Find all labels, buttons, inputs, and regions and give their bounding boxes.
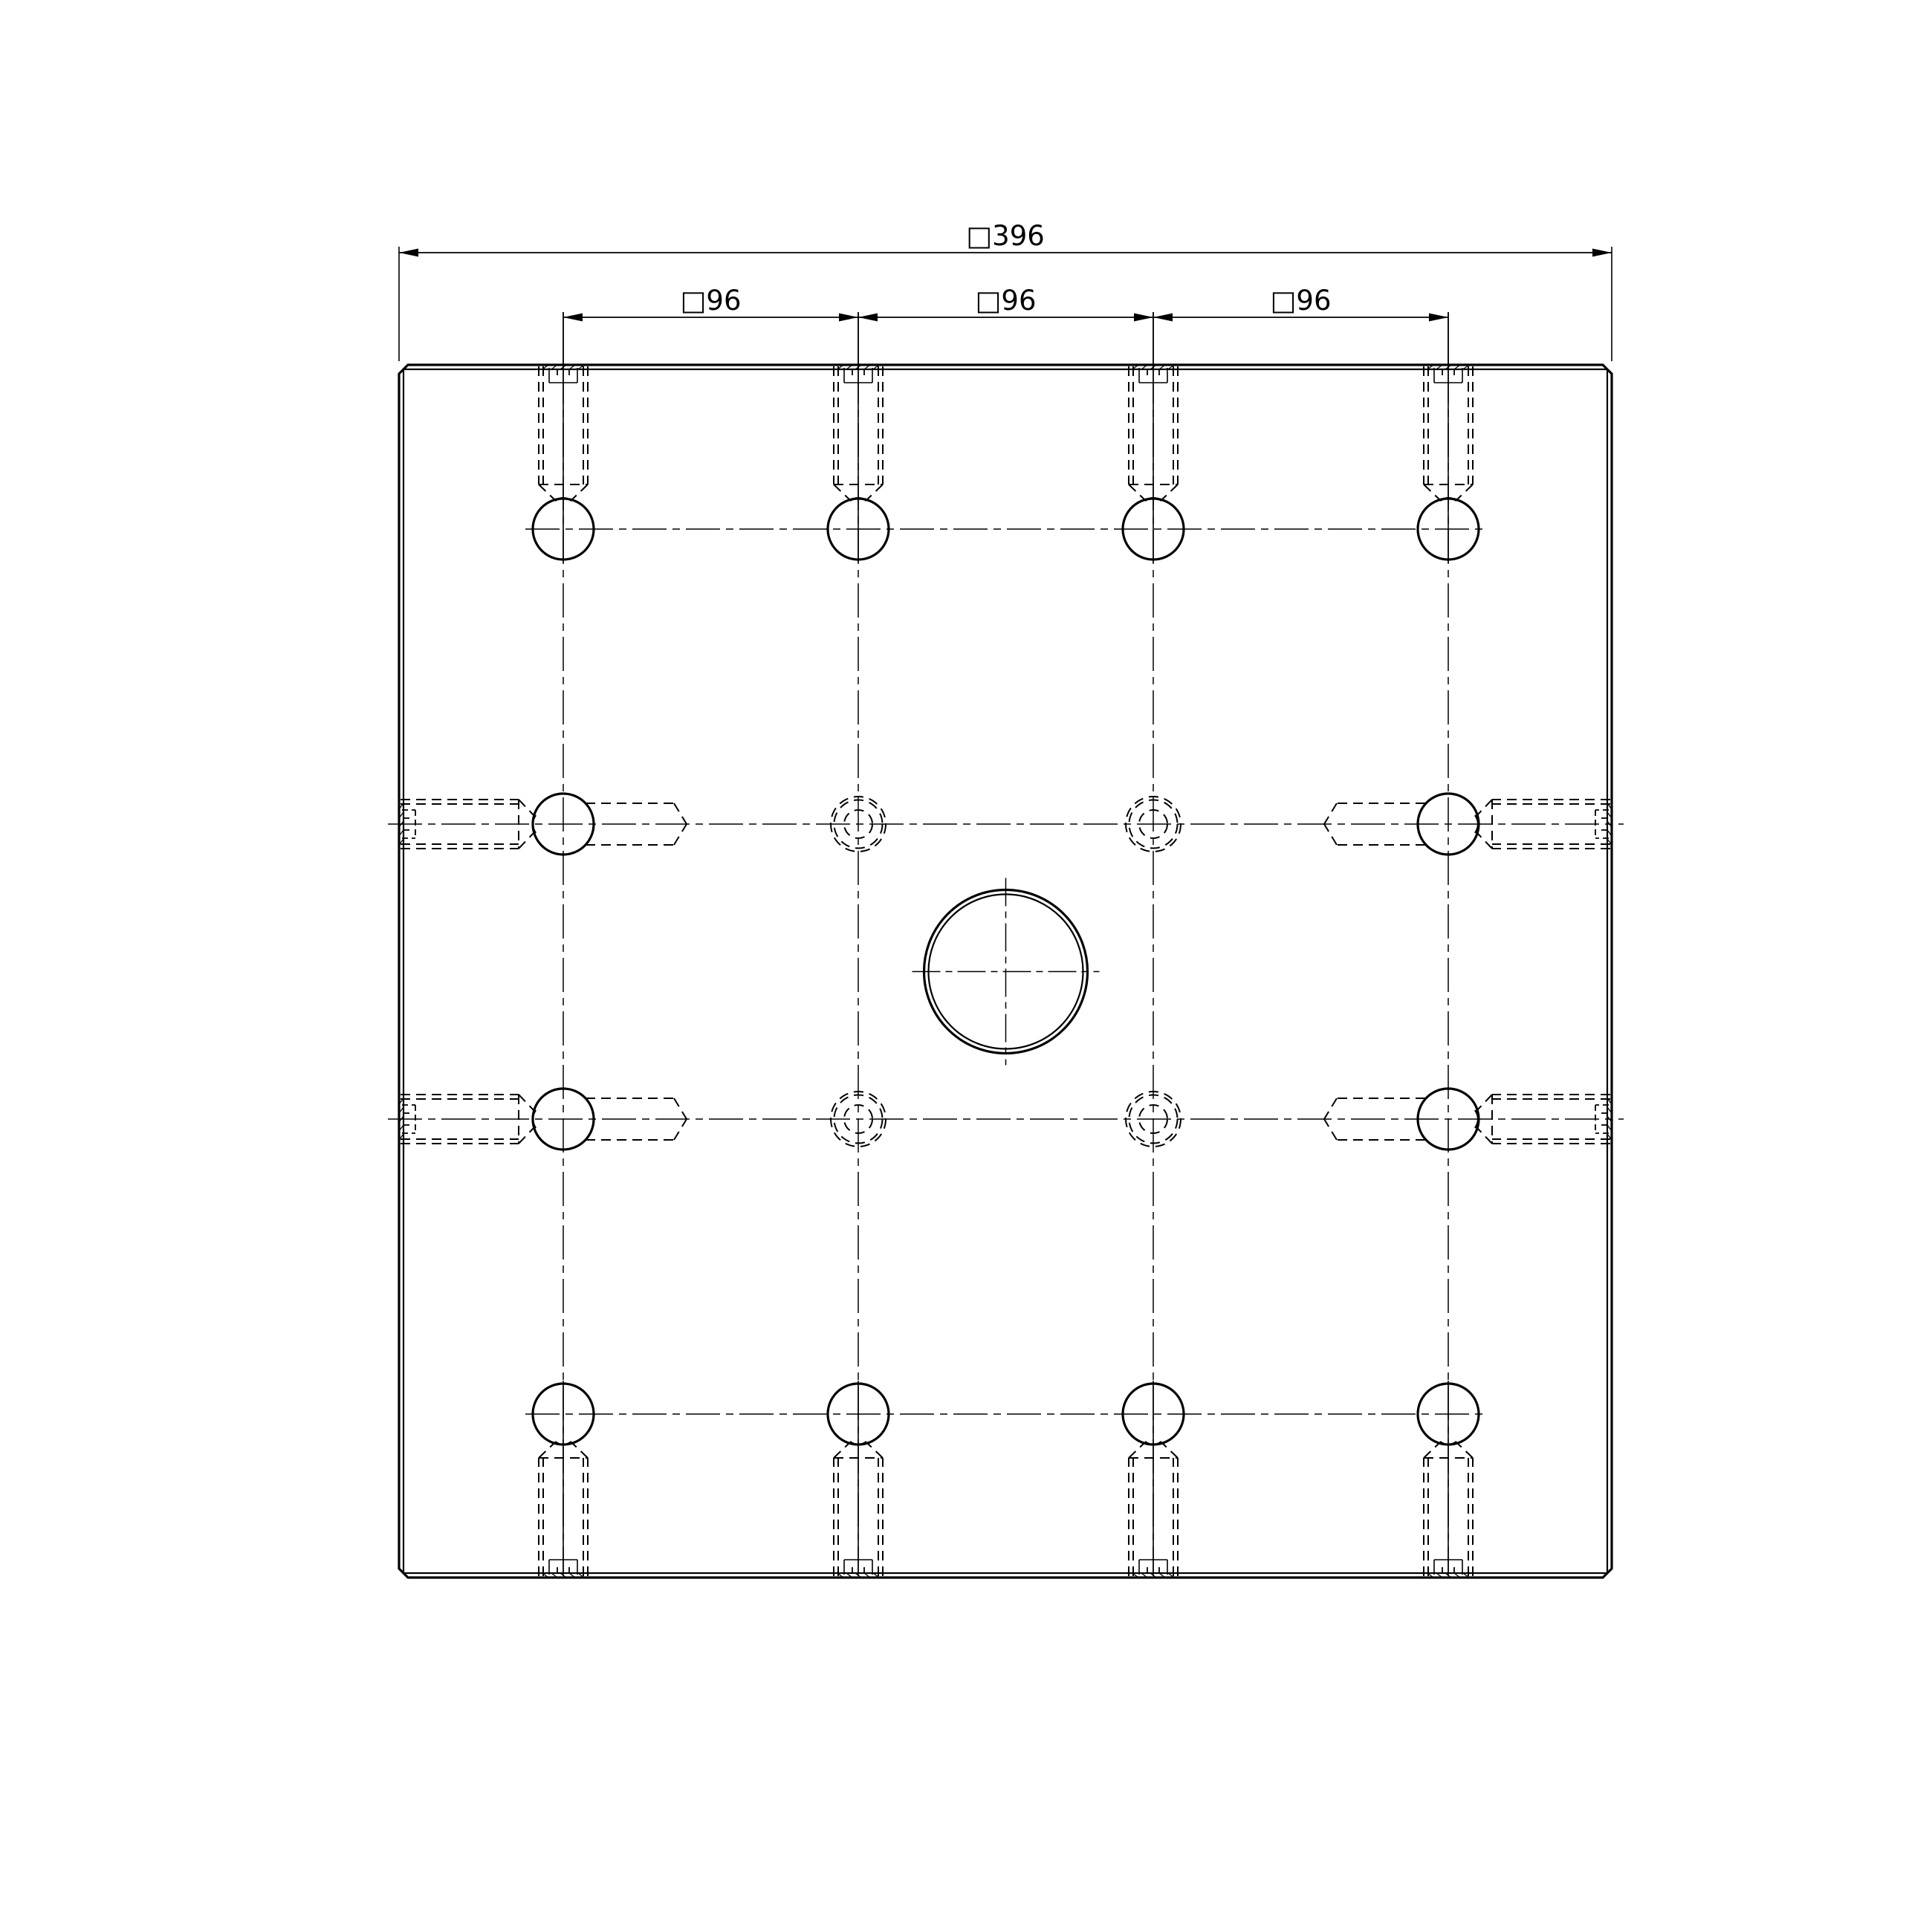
drawing-sheet: □396□96□96□96	[0, 0, 1932, 1932]
cad-drawing: □396□96□96□96	[0, 0, 1932, 1932]
overall-dimension-label: □396	[966, 220, 1045, 252]
pitch-dimension-label: □96	[680, 285, 741, 317]
pitch-dimension-label: □96	[1270, 285, 1331, 317]
pitch-dimension: □96□96□96	[563, 285, 1448, 322]
pitch-dimension-label: □96	[975, 285, 1036, 317]
center-hole	[912, 878, 1100, 1066]
